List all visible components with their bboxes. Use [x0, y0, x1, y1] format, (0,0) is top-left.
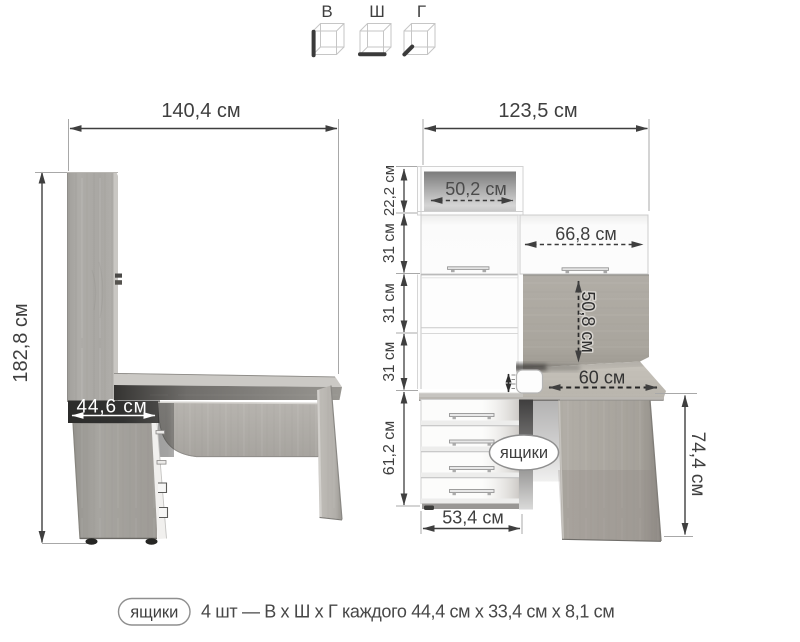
svg-text:31 см: 31 см	[381, 283, 398, 323]
svg-text:74,4 см: 74,4 см	[687, 432, 708, 497]
svg-text:22,2 см: 22,2 см	[381, 165, 398, 216]
svg-text:Ш: Ш	[369, 2, 385, 21]
svg-text:ящики: ящики	[130, 604, 178, 622]
svg-text:60 см: 60 см	[579, 368, 625, 388]
svg-text:В: В	[321, 2, 332, 21]
svg-text:53,4 см: 53,4 см	[442, 508, 503, 528]
svg-text:44,6 см: 44,6 см	[76, 397, 147, 418]
svg-text:31 см: 31 см	[381, 223, 398, 263]
svg-text:66,8 см: 66,8 см	[555, 224, 616, 244]
svg-text:Г: Г	[417, 2, 426, 21]
svg-text:50,2 см: 50,2 см	[445, 179, 506, 199]
svg-text:140,4 см: 140,4 см	[161, 100, 240, 122]
svg-text:61,2 см: 61,2 см	[381, 421, 398, 476]
svg-text:ящики: ящики	[500, 444, 548, 462]
svg-text:50,8 см: 50,8 см	[578, 291, 598, 352]
svg-text:182,8 см: 182,8 см	[10, 303, 32, 382]
svg-text:31 см: 31 см	[381, 342, 398, 382]
svg-text:123,5 см: 123,5 см	[498, 100, 577, 122]
svg-text:4 шт — В х Ш х Г каждого 44,4: 4 шт — В х Ш х Г каждого 44,4 см х 33,4 …	[201, 602, 614, 622]
